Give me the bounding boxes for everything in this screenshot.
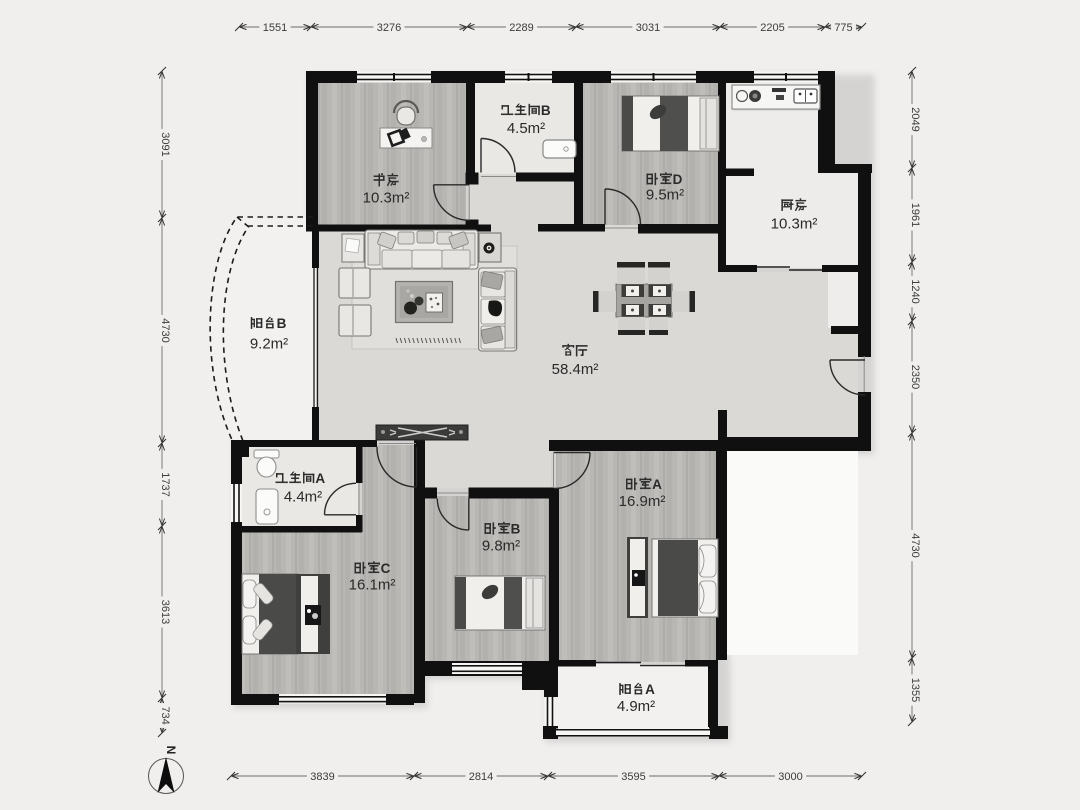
svg-text:3613: 3613 xyxy=(159,600,171,624)
svg-text:4730: 4730 xyxy=(909,533,921,557)
svg-text:9.2m²: 9.2m² xyxy=(250,335,288,352)
svg-text:16.1m²: 16.1m² xyxy=(349,576,396,593)
svg-text:2289: 2289 xyxy=(509,22,533,34)
svg-text:N: N xyxy=(164,746,178,755)
svg-text:3839: 3839 xyxy=(310,771,334,783)
svg-text:2049: 2049 xyxy=(909,107,921,131)
svg-text:2814: 2814 xyxy=(469,771,493,783)
svg-text:4.5m²: 4.5m² xyxy=(507,120,545,137)
svg-text:3000: 3000 xyxy=(778,771,802,783)
svg-text:4.4m²: 4.4m² xyxy=(284,488,322,505)
svg-text:C: C xyxy=(381,561,391,576)
svg-text:1737: 1737 xyxy=(159,472,171,496)
svg-text:10.3m²: 10.3m² xyxy=(363,189,410,206)
svg-text:58.4m²: 58.4m² xyxy=(552,361,599,378)
svg-text:1355: 1355 xyxy=(909,678,921,702)
svg-text:1961: 1961 xyxy=(909,203,921,227)
svg-text:4.9m²: 4.9m² xyxy=(617,698,655,715)
svg-text:10.3m²: 10.3m² xyxy=(771,215,818,232)
svg-text:A: A xyxy=(315,471,325,486)
svg-text:D: D xyxy=(673,172,683,187)
svg-text:3276: 3276 xyxy=(377,22,401,34)
svg-text:B: B xyxy=(277,316,287,331)
svg-text:9.8m²: 9.8m² xyxy=(482,537,520,554)
svg-text:2205: 2205 xyxy=(760,22,784,34)
svg-text:3031: 3031 xyxy=(636,22,660,34)
svg-text:3091: 3091 xyxy=(159,132,171,156)
svg-text:B: B xyxy=(541,103,551,118)
svg-text:775: 775 xyxy=(834,22,852,34)
svg-text:734: 734 xyxy=(159,706,171,724)
svg-text:3595: 3595 xyxy=(621,771,645,783)
svg-text:9.5m²: 9.5m² xyxy=(646,186,684,203)
svg-text:2350: 2350 xyxy=(909,365,921,389)
svg-text:A: A xyxy=(652,477,662,492)
svg-text:B: B xyxy=(511,521,521,536)
svg-text:1240: 1240 xyxy=(909,279,921,303)
svg-text:16.9m²: 16.9m² xyxy=(619,493,666,510)
svg-text:4730: 4730 xyxy=(159,318,171,342)
svg-text:1551: 1551 xyxy=(263,22,287,34)
svg-text:A: A xyxy=(645,682,655,697)
